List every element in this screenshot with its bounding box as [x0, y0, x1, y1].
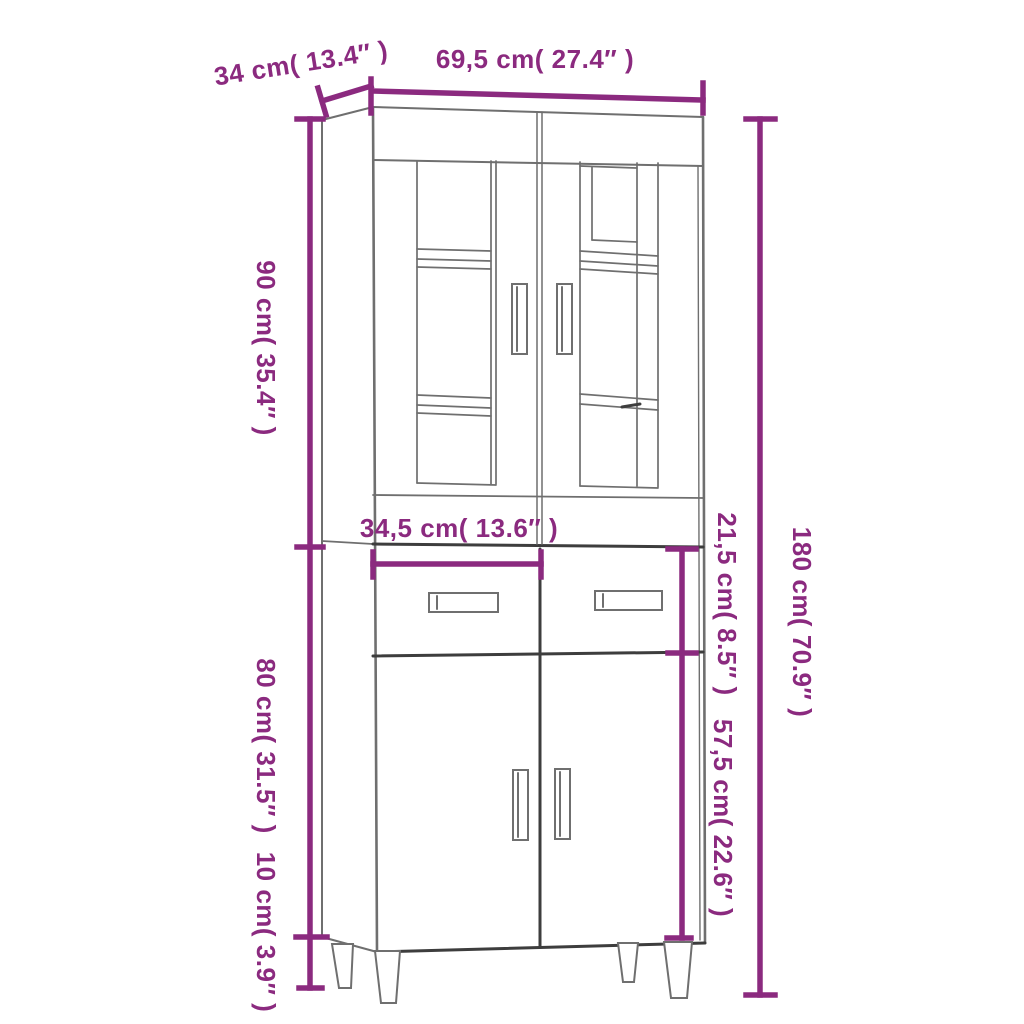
dimension-label-total-height: 180 cm( 70.9″ )	[787, 527, 817, 718]
dimension-label-depth: 34 cm( 13.4″ )	[212, 34, 390, 91]
dimension-label-upper-height: 90 cm( 35.4″ )	[251, 260, 281, 436]
lower-right-handle	[555, 769, 570, 839]
dimension-line-inner-heights	[667, 549, 696, 938]
drawer-handles	[429, 591, 662, 612]
dimension-label-width: 69,5 cm( 27.4″ )	[436, 44, 634, 74]
upper-right-handle	[557, 284, 572, 354]
lower-left-handle	[513, 770, 528, 840]
dimension-label-drawer-width: 34,5 cm( 13.6″ )	[360, 513, 558, 543]
right-door-shelf-lines	[580, 251, 658, 410]
upper-left-handle	[512, 284, 527, 354]
dimension-label-door-height: 57,5 cm( 22.6″ )	[708, 719, 738, 917]
right-glass-door	[580, 162, 658, 488]
cabinet-legs	[332, 942, 692, 1003]
leg-back-right	[618, 943, 638, 982]
dimension-line-drawer-width	[373, 552, 541, 577]
cabinet-drawing	[322, 107, 705, 1003]
leg-front-right	[664, 942, 692, 998]
left-door-shelf-lines	[417, 249, 491, 416]
leg-back-left	[332, 944, 353, 988]
dimension-line-total-height	[746, 119, 775, 995]
left-drawer-handle	[429, 593, 498, 612]
dimension-label-lower-height: 80 cm( 31.5″ )	[251, 658, 281, 834]
dimension-label-leg-height: 10 cm( 3.9″ )	[251, 852, 281, 1013]
furniture-diagram-svg: 34 cm( 13.4″ ) 69,5 cm( 27.4″ ) 90 cm( 3…	[0, 0, 1024, 1024]
left-glass-door	[417, 161, 496, 485]
right-drawer-handle	[595, 591, 662, 610]
dimension-diagram-page: 34 cm( 13.4″ ) 69,5 cm( 27.4″ ) 90 cm( 3…	[0, 0, 1024, 1024]
dimension-labels: 34 cm( 13.4″ ) 69,5 cm( 27.4″ ) 90 cm( 3…	[212, 34, 817, 1012]
leg-front-left	[375, 951, 400, 1003]
dimension-label-drawer-height: 21,5 cm( 8.5″ )	[712, 512, 742, 695]
